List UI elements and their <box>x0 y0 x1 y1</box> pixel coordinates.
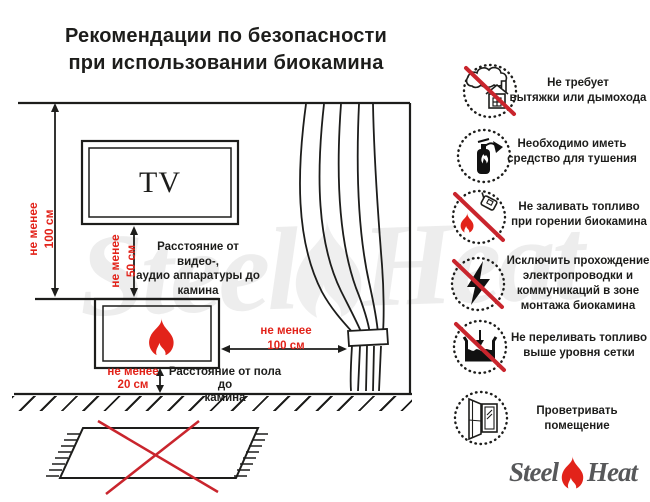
rule-label-no-overfill: Не переливать топливо выше уровня сетки <box>510 331 648 361</box>
dim-floor-to-fireplace: не менее 20 см <box>94 366 172 392</box>
tv-distance-note: Расстояние от видео-, аудио аппаратуры д… <box>136 240 260 298</box>
no-wiring-icon <box>448 254 508 314</box>
tv-label: TV <box>82 141 238 224</box>
safety-infographic: Steel Heat Рекомендации по безопасности … <box>0 0 650 502</box>
logo-steel-text: Steel <box>509 457 558 488</box>
rule-label-extinguisher: Необходимо иметь средство для тушения <box>504 137 640 167</box>
flame-icon <box>559 456 586 489</box>
brand-logo: Steel Heat <box>498 456 648 489</box>
open-window <box>469 399 497 439</box>
rule-label-no-wiring: Исключить прохождение электропроводки и … <box>506 254 650 314</box>
logo-heat-text: Heat <box>587 457 637 488</box>
no-refuel-while-burning-icon <box>449 187 509 247</box>
prohibition-slash <box>454 261 502 307</box>
rule-label-no-refuel: Не заливать топливо при горении биокамин… <box>510 200 648 230</box>
dim-ceiling-to-fireplace: не менее 100 см <box>25 174 57 284</box>
floor-distance-note: Расстояние от пола до камина <box>163 366 287 405</box>
rule-label-no-chimney: Не требует вытяжки или дымохода <box>508 76 648 106</box>
dim-tv-to-fireplace: не менее 50 см <box>107 221 139 301</box>
extinguisher-body <box>477 139 503 174</box>
smoke-cloud <box>467 68 507 88</box>
ventilate-icon <box>451 388 511 448</box>
no-overfill-icon <box>450 317 510 377</box>
curtain-tie <box>348 329 388 346</box>
dim-fireplace-to-curtain: не менее 100 см <box>241 324 331 353</box>
rule-label-ventilate: Проветривать помещение <box>515 404 639 434</box>
flame-icon <box>461 213 474 233</box>
fireplace-flame-icon <box>149 318 174 355</box>
